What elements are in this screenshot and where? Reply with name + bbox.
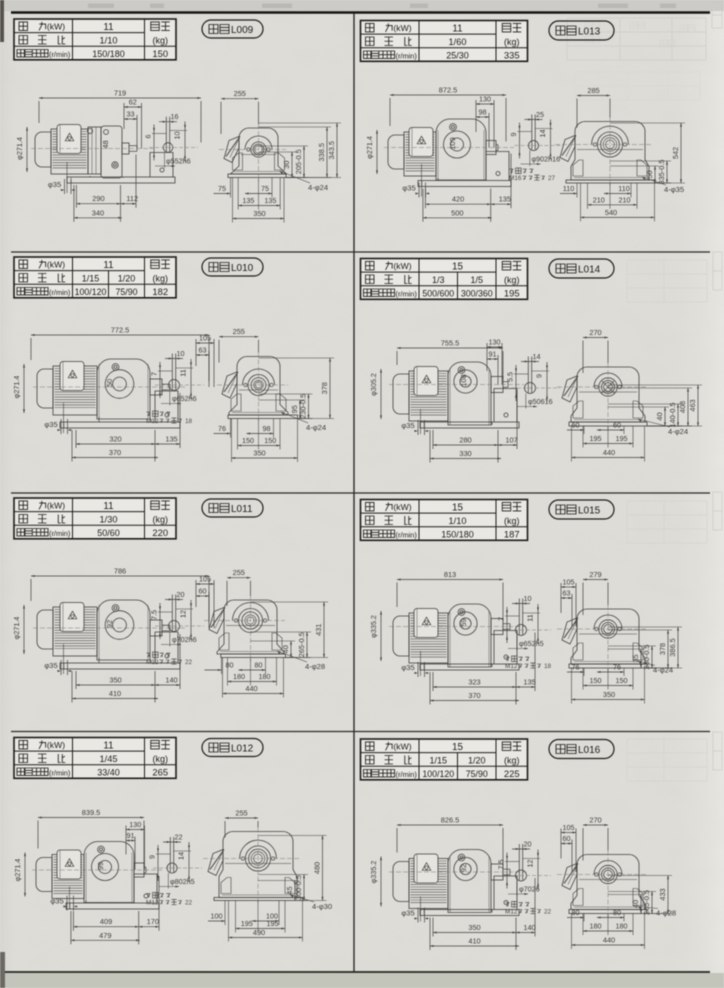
svg-text:5.5: 5.5 (506, 372, 515, 382)
svg-text:75: 75 (218, 184, 226, 193)
svg-text:540: 540 (605, 208, 617, 217)
svg-text:(kg): (kg) (504, 755, 520, 765)
svg-text:M16: M16 (509, 175, 522, 182)
svg-text:22: 22 (175, 833, 183, 842)
svg-text:340: 340 (92, 208, 104, 217)
svg-text:40: 40 (281, 645, 290, 653)
svg-text:755.5: 755.5 (441, 339, 460, 348)
svg-text:63: 63 (563, 589, 571, 598)
svg-text:320: 320 (109, 435, 121, 444)
svg-text:27: 27 (548, 175, 556, 182)
svg-text:378: 378 (320, 382, 329, 394)
svg-text:410: 410 (468, 937, 480, 946)
svg-text:92: 92 (105, 620, 114, 628)
svg-text:11: 11 (103, 501, 113, 512)
svg-text:182: 182 (152, 286, 168, 297)
svg-text:370: 370 (468, 691, 480, 700)
svg-text:7.5: 7.5 (497, 860, 506, 870)
svg-text:12: 12 (526, 860, 535, 868)
svg-text:φ35: φ35 (44, 420, 57, 429)
svg-text:150/180: 150/180 (441, 530, 474, 540)
svg-text:φ35: φ35 (401, 421, 414, 430)
svg-text:50: 50 (645, 170, 654, 178)
svg-text:11: 11 (179, 369, 188, 376)
svg-text:22: 22 (544, 909, 552, 916)
svg-text:4-φ35: 4-φ35 (664, 185, 684, 194)
svg-text:100/120: 100/120 (422, 769, 454, 779)
svg-text:420: 420 (452, 195, 464, 204)
svg-text:135: 135 (499, 195, 511, 204)
svg-text:(kg): (kg) (504, 516, 520, 526)
svg-text:15: 15 (452, 261, 463, 272)
svg-text:φ35: φ35 (50, 897, 63, 906)
svg-text:230-0.5: 230-0.5 (642, 644, 651, 669)
svg-text:130: 130 (129, 820, 141, 829)
svg-text:542: 542 (671, 147, 680, 159)
svg-text:230-0.5: 230-0.5 (299, 394, 308, 419)
svg-text:100: 100 (211, 912, 223, 921)
svg-text:10: 10 (524, 594, 532, 603)
svg-text:265: 265 (152, 767, 168, 778)
svg-text:10: 10 (173, 132, 182, 140)
svg-text:(kW): (kW) (47, 260, 65, 270)
svg-text:719: 719 (114, 89, 126, 98)
svg-text:195: 195 (241, 919, 253, 928)
svg-text:180: 180 (616, 922, 628, 931)
svg-text:φ271.4: φ271.4 (13, 859, 22, 882)
svg-text:135: 135 (264, 196, 276, 205)
svg-text:150: 150 (616, 676, 628, 685)
svg-text:330: 330 (459, 449, 471, 458)
svg-text:50/60: 50/60 (97, 528, 120, 538)
svg-text:φ35: φ35 (401, 909, 414, 918)
svg-text:180: 180 (233, 672, 245, 681)
svg-text:225: 225 (504, 768, 520, 779)
svg-text:91: 91 (127, 831, 135, 840)
svg-text:150/180: 150/180 (92, 49, 125, 59)
svg-text:40: 40 (655, 412, 664, 420)
svg-text:15: 15 (452, 742, 463, 753)
svg-text:7: 7 (497, 617, 506, 621)
svg-text:62: 62 (129, 98, 137, 107)
svg-text:408: 408 (678, 401, 687, 413)
svg-text:335-0.5: 335-0.5 (657, 159, 666, 184)
svg-text:9: 9 (509, 133, 518, 137)
svg-text:195: 195 (616, 434, 628, 443)
svg-text:350: 350 (253, 449, 265, 458)
svg-text:80: 80 (572, 908, 580, 917)
svg-text:195: 195 (267, 919, 279, 928)
svg-text:378: 378 (658, 643, 667, 655)
svg-text:φ271.4: φ271.4 (365, 136, 374, 159)
svg-text:839.5: 839.5 (82, 808, 101, 817)
svg-text:135: 135 (523, 678, 535, 687)
svg-text:290: 290 (92, 194, 104, 203)
svg-text:10: 10 (177, 349, 185, 358)
svg-text:11: 11 (526, 614, 535, 621)
svg-text:135: 135 (165, 435, 177, 444)
svg-text:48: 48 (101, 140, 110, 148)
svg-text:L014: L014 (578, 264, 601, 275)
svg-text:150: 150 (242, 436, 254, 445)
svg-text:(r/min): (r/min) (396, 290, 417, 299)
svg-text:109: 109 (448, 137, 457, 150)
svg-text:45: 45 (285, 886, 294, 894)
svg-text:7.5: 7.5 (150, 610, 159, 620)
svg-text:4-φ28: 4-φ28 (656, 909, 676, 918)
svg-text:110: 110 (618, 184, 629, 193)
svg-text:φ271.4: φ271.4 (15, 137, 24, 160)
svg-text:409: 409 (100, 917, 112, 926)
svg-text:180: 180 (590, 922, 602, 931)
svg-text:L011: L011 (231, 504, 253, 515)
svg-text:M12: M12 (146, 418, 159, 425)
svg-text:59: 59 (459, 618, 468, 626)
svg-text:490: 490 (253, 928, 265, 937)
svg-text:1/20: 1/20 (118, 274, 136, 284)
svg-text:φ702h6: φ702h6 (172, 635, 197, 644)
svg-text:1/15: 1/15 (82, 274, 100, 284)
svg-text:76: 76 (572, 663, 580, 672)
svg-text:9: 9 (148, 855, 157, 859)
svg-text:338.5: 338.5 (317, 143, 326, 162)
svg-text:φ335.2: φ335.2 (369, 861, 378, 884)
svg-text:18: 18 (185, 418, 193, 425)
svg-text:150: 150 (264, 436, 276, 445)
svg-text:170: 170 (147, 917, 159, 926)
svg-text:63: 63 (199, 346, 207, 355)
svg-text:210: 210 (619, 195, 631, 204)
svg-text:11: 11 (452, 23, 462, 34)
svg-text:φ271.4: φ271.4 (12, 617, 21, 640)
svg-text:300/360: 300/360 (461, 289, 493, 299)
svg-text:M12: M12 (505, 663, 518, 670)
svg-text:479: 479 (99, 931, 111, 940)
svg-text:22: 22 (185, 659, 193, 666)
svg-text:11: 11 (103, 22, 113, 33)
svg-text:105: 105 (199, 334, 211, 343)
svg-text:255: 255 (234, 89, 246, 98)
svg-text:4-φ24: 4-φ24 (668, 427, 688, 436)
svg-text:16: 16 (171, 112, 179, 121)
svg-text:76: 76 (613, 663, 621, 672)
svg-text:18: 18 (544, 663, 552, 670)
svg-text:107: 107 (505, 436, 517, 445)
svg-text:210: 210 (593, 195, 605, 204)
svg-text:φ50616: φ50616 (528, 397, 553, 406)
svg-text:15: 15 (452, 502, 463, 513)
svg-text:370: 370 (109, 448, 121, 457)
svg-text:L010: L010 (231, 263, 254, 274)
svg-text:φ305.2: φ305.2 (369, 373, 378, 396)
svg-text:4-φ24: 4-φ24 (308, 183, 328, 192)
svg-text:(kg): (kg) (504, 275, 520, 285)
svg-text:14: 14 (177, 852, 186, 860)
svg-text:195: 195 (590, 434, 602, 443)
svg-text:20: 20 (177, 590, 185, 599)
svg-text:1/30: 1/30 (100, 515, 118, 525)
svg-text:265-0.5: 265-0.5 (297, 632, 306, 657)
svg-text:130: 130 (489, 338, 501, 347)
svg-text:195: 195 (504, 288, 520, 299)
svg-text:105: 105 (199, 575, 211, 584)
svg-text:φ35: φ35 (402, 184, 415, 193)
svg-text:1/10: 1/10 (449, 516, 467, 526)
svg-text:1/20: 1/20 (468, 756, 486, 766)
svg-text:(r/min): (r/min) (49, 50, 70, 59)
svg-text:187: 187 (504, 529, 520, 540)
svg-text:80: 80 (613, 908, 621, 917)
svg-text:110: 110 (563, 184, 574, 193)
svg-text:75/90: 75/90 (466, 769, 488, 779)
svg-text:(kg): (kg) (504, 37, 520, 47)
svg-text:(kg): (kg) (153, 754, 169, 764)
svg-text:20: 20 (524, 840, 532, 849)
svg-text:25/30: 25/30 (446, 51, 469, 61)
svg-text:220: 220 (152, 527, 168, 538)
svg-text:φ35: φ35 (48, 180, 61, 189)
svg-text:(kg): (kg) (153, 35, 169, 45)
svg-text:433: 433 (658, 888, 667, 900)
svg-text:75/90: 75/90 (115, 287, 137, 297)
svg-text:205-0.5: 205-0.5 (294, 149, 303, 174)
svg-text:265-0.5: 265-0.5 (642, 890, 651, 915)
svg-text:100/120: 100/120 (75, 287, 107, 297)
svg-text:φ902h16: φ902h16 (532, 155, 561, 164)
svg-text:φ652h6: φ652h6 (172, 394, 197, 403)
svg-text:(r/min): (r/min) (49, 529, 70, 538)
svg-text:11: 11 (103, 740, 113, 751)
svg-text:(r/min): (r/min) (396, 52, 417, 61)
svg-text:φ652h5: φ652h5 (519, 639, 544, 648)
svg-text:480: 480 (313, 862, 322, 874)
svg-text:30: 30 (282, 161, 291, 169)
svg-text:1/5: 1/5 (470, 275, 483, 285)
svg-text:7: 7 (150, 372, 159, 376)
svg-text:500/600: 500/600 (422, 289, 454, 299)
svg-text:33: 33 (127, 110, 135, 119)
svg-text:60: 60 (563, 834, 571, 843)
svg-text:(kW): (kW) (47, 22, 65, 32)
svg-text:350: 350 (603, 690, 615, 699)
svg-text:L015: L015 (578, 505, 601, 516)
svg-text:12: 12 (179, 610, 188, 618)
svg-text:22: 22 (185, 900, 193, 907)
svg-text:6: 6 (144, 135, 153, 139)
svg-text:(kW): (kW) (393, 742, 411, 752)
svg-text:270: 270 (589, 328, 601, 337)
svg-text:76: 76 (218, 424, 226, 433)
svg-text:140: 140 (165, 676, 177, 685)
svg-text:140-0.5: 140-0.5 (668, 402, 677, 427)
svg-text:112: 112 (126, 194, 138, 203)
svg-text:80: 80 (255, 661, 263, 670)
svg-text:270: 270 (589, 816, 601, 825)
svg-text:92: 92 (459, 864, 468, 872)
svg-text:813: 813 (444, 570, 456, 579)
svg-text:4-φ30: 4-φ30 (312, 902, 332, 911)
svg-text:L012: L012 (231, 743, 254, 754)
svg-text:9: 9 (535, 374, 544, 378)
svg-text:(r/min): (r/min) (396, 770, 417, 779)
svg-text:108: 108 (459, 374, 468, 387)
svg-text:11: 11 (103, 260, 113, 271)
svg-text:φ7026: φ7026 (519, 885, 540, 894)
svg-text:1/45: 1/45 (100, 754, 118, 764)
svg-text:279: 279 (589, 570, 601, 579)
svg-text:500: 500 (451, 208, 463, 217)
svg-text:1/3: 1/3 (432, 275, 445, 285)
svg-text:440: 440 (603, 448, 615, 457)
svg-text:33/40: 33/40 (97, 768, 120, 778)
svg-text:105: 105 (563, 823, 575, 832)
svg-text:135: 135 (242, 196, 254, 205)
svg-text:(kg): (kg) (153, 514, 169, 524)
svg-text:(kW): (kW) (393, 23, 411, 33)
svg-text:75: 75 (261, 184, 269, 193)
svg-text:99: 99 (96, 862, 105, 870)
svg-text:98: 98 (263, 424, 271, 433)
svg-text:(r/min): (r/min) (49, 288, 70, 297)
svg-text:105: 105 (563, 578, 575, 587)
svg-text:98: 98 (479, 108, 487, 117)
svg-text:M12: M12 (146, 659, 159, 666)
svg-text:350: 350 (109, 676, 121, 685)
svg-text:L009: L009 (231, 25, 254, 36)
svg-text:1/10: 1/10 (100, 36, 118, 46)
svg-text:255: 255 (233, 327, 245, 336)
svg-text:431: 431 (314, 624, 323, 636)
svg-text:4-φ24: 4-φ24 (306, 423, 326, 432)
svg-text:350: 350 (468, 923, 480, 932)
svg-text:(r/min): (r/min) (49, 769, 70, 778)
svg-text:180: 180 (259, 672, 271, 681)
svg-text:25: 25 (536, 110, 544, 119)
svg-text:(kg): (kg) (153, 273, 169, 283)
svg-text:1/60: 1/60 (449, 37, 467, 47)
svg-text:M12: M12 (146, 900, 159, 907)
svg-text:50: 50 (105, 379, 114, 387)
svg-text:(kW): (kW) (393, 502, 411, 512)
svg-text:350: 350 (253, 209, 265, 218)
svg-text:14: 14 (533, 352, 541, 361)
svg-text:φ271.4: φ271.4 (12, 376, 21, 399)
svg-text:4-φ28: 4-φ28 (305, 662, 325, 671)
svg-text:285: 285 (587, 86, 599, 95)
svg-text:440: 440 (603, 936, 615, 945)
svg-text:60: 60 (572, 421, 580, 430)
svg-text:φ35: φ35 (401, 663, 414, 672)
svg-text:255: 255 (233, 568, 245, 577)
svg-text:335: 335 (504, 50, 520, 61)
svg-text:140: 140 (523, 923, 535, 932)
svg-text:386.5: 386.5 (668, 638, 677, 657)
svg-text:1/15: 1/15 (429, 756, 447, 766)
svg-text:φ552h6: φ552h6 (166, 157, 191, 166)
svg-text:φ35: φ35 (44, 661, 57, 670)
svg-text:80: 80 (226, 661, 234, 670)
svg-text:826.5: 826.5 (441, 816, 460, 825)
svg-text:φ802h5: φ802h5 (170, 877, 195, 886)
svg-text:280: 280 (459, 436, 471, 445)
svg-text:L016: L016 (578, 745, 601, 756)
svg-text:60: 60 (613, 421, 621, 430)
svg-text:440: 440 (245, 684, 257, 693)
svg-text:130: 130 (479, 95, 491, 104)
svg-text:60: 60 (199, 587, 207, 596)
svg-text:463: 463 (688, 399, 697, 411)
svg-text:150: 150 (590, 676, 602, 685)
svg-text:14: 14 (538, 130, 547, 138)
svg-text:410: 410 (109, 689, 121, 698)
svg-text:(r/min): (r/min) (396, 531, 417, 540)
svg-text:872.5: 872.5 (439, 86, 458, 95)
svg-text:4-φ24: 4-φ24 (653, 666, 673, 675)
svg-text:φ335.2: φ335.2 (369, 615, 378, 638)
svg-text:343.5: 343.5 (327, 141, 336, 160)
svg-text:L013: L013 (578, 26, 601, 37)
svg-text:(kW): (kW) (47, 740, 65, 750)
svg-text:772.5: 772.5 (111, 326, 130, 335)
svg-text:M12: M12 (505, 909, 518, 916)
svg-text:91: 91 (489, 350, 497, 359)
svg-text:786: 786 (114, 567, 126, 576)
svg-text:(kW): (kW) (393, 261, 411, 271)
svg-text:255: 255 (235, 809, 247, 818)
svg-text:150: 150 (152, 48, 168, 59)
svg-text:(kW): (kW) (47, 501, 65, 511)
svg-text:323: 323 (468, 678, 480, 687)
